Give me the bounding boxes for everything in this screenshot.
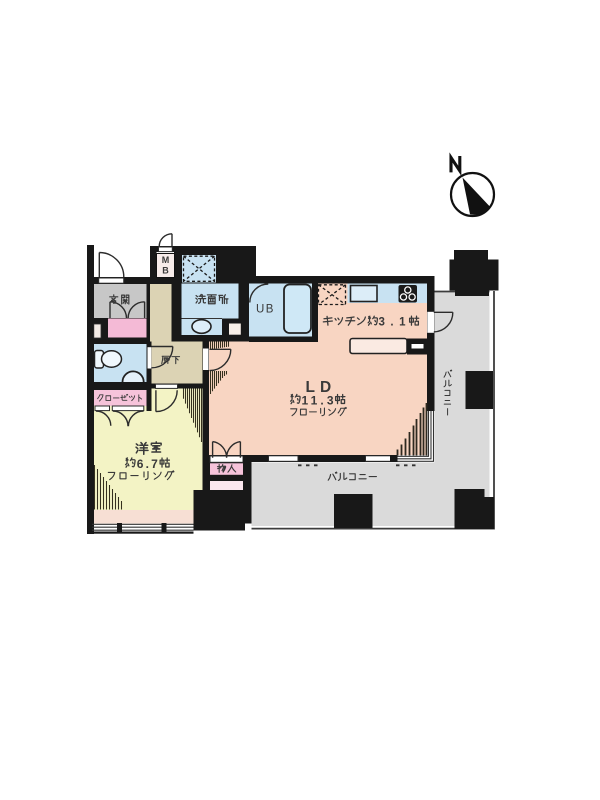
svg-text:6.7: 6.7 [137, 457, 158, 471]
svg-text:3.1: 3.1 [379, 317, 407, 329]
svg-text:UB: UB [256, 304, 275, 316]
svg-text:M: M [162, 255, 170, 265]
svg-text:B: B [162, 266, 169, 276]
